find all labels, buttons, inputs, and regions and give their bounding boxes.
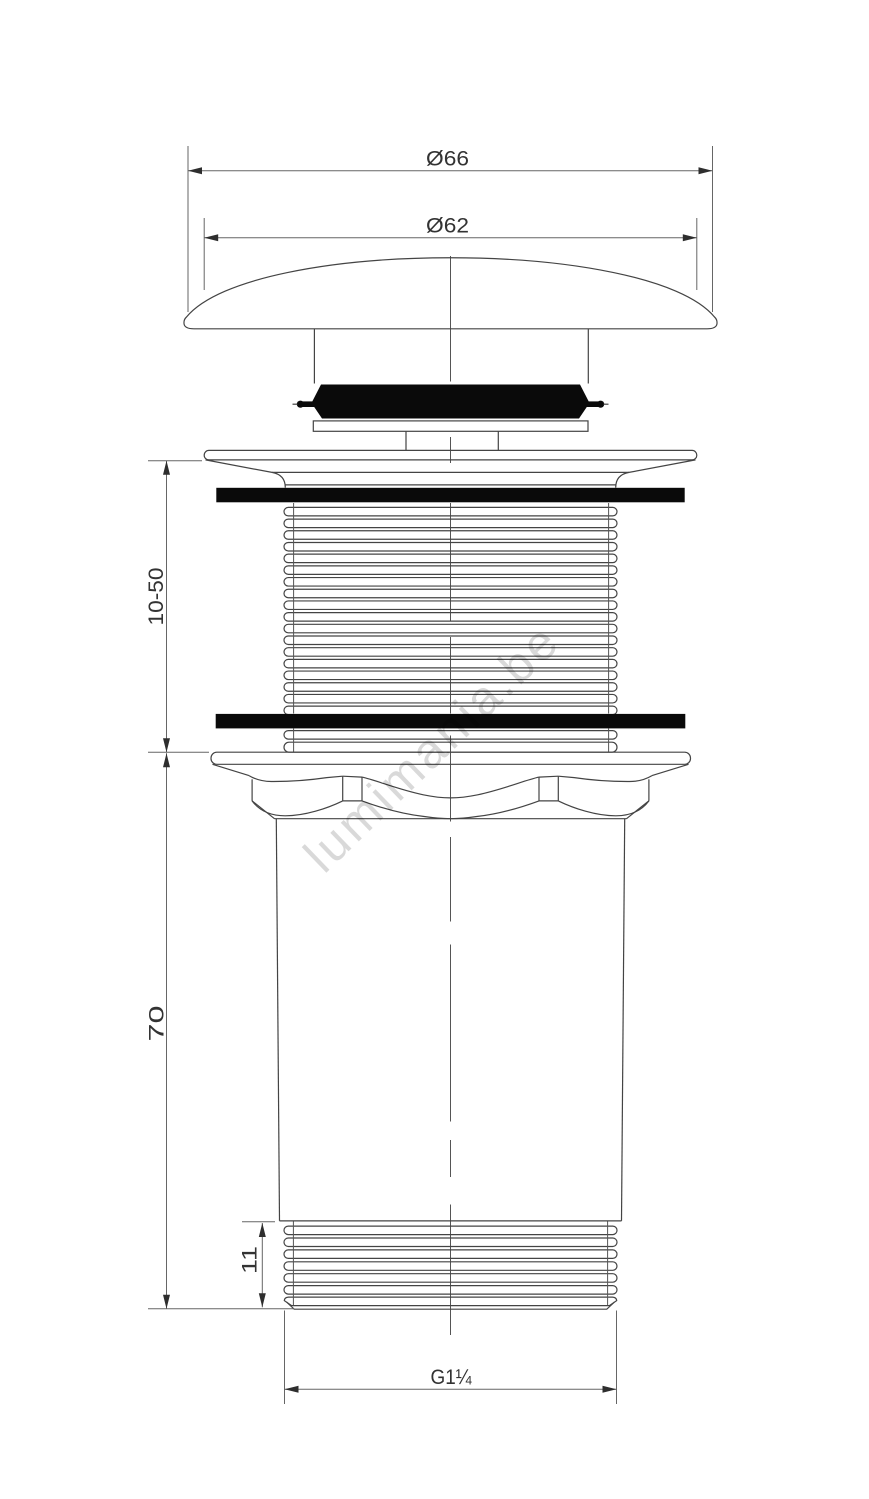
svg-text:Ø66: Ø66 <box>426 148 469 171</box>
svg-text:Ø62: Ø62 <box>426 215 469 238</box>
svg-text:70: 70 <box>146 1006 169 1042</box>
svg-text:10-50: 10-50 <box>145 568 168 626</box>
svg-text:G1¼: G1¼ <box>431 1366 472 1389</box>
svg-text:11: 11 <box>239 1246 262 1274</box>
